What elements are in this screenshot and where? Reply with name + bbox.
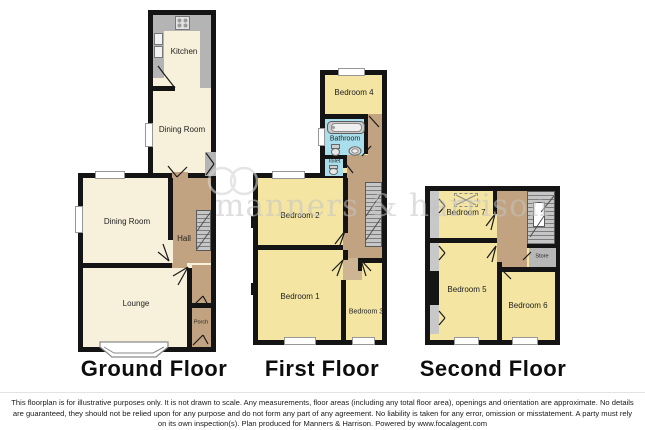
window [145, 123, 153, 147]
floorplan-canvas: Kitchen Dining Room Dining Room Hall Lou… [0, 0, 645, 430]
hall-door-gap [172, 172, 188, 179]
window [75, 206, 83, 233]
room-label-bedroom7: Bedroom 7 [446, 209, 485, 217]
window [95, 171, 125, 179]
eaves-storage [430, 191, 439, 238]
kitchen-counter-top [153, 15, 211, 31]
eaves-storage [430, 243, 439, 271]
first-stairs [365, 182, 382, 247]
room-label-dining-lower: Dining Room [104, 218, 150, 226]
second-floor-title: Second Floor [420, 356, 567, 382]
room-label-porch: Porch [194, 320, 208, 326]
window [454, 337, 479, 345]
room-label-kitchen: Kitchen [171, 48, 198, 56]
bed1-stub-wall [343, 250, 348, 260]
chimney-notch [251, 216, 257, 228]
room-label-hall: Hall [177, 235, 191, 243]
lounge-door-gap [172, 263, 187, 268]
ground-floor-title: Ground Floor [81, 356, 228, 382]
room-label-bedroom4: Bedroom 4 [334, 89, 373, 97]
dining-lounge-wall [83, 263, 172, 268]
second-landing [497, 191, 527, 267]
bed2-landing-wall [343, 178, 348, 233]
first-floor-title: First Floor [265, 356, 379, 382]
oven-icon [154, 46, 163, 58]
bed1-bed3-wall [341, 280, 346, 340]
bed6-top-wall [497, 267, 556, 272]
room-label-bedroom3: Bedroom 3 [349, 309, 383, 316]
left-wall-block [430, 271, 439, 305]
kitchen-counter-right [200, 31, 211, 88]
skylight-icon [454, 193, 478, 207]
room-label-bedroom1: Bedroom 1 [280, 293, 319, 301]
first-section-bridge [347, 172, 382, 179]
ground-stairs [196, 210, 211, 251]
window [318, 128, 325, 146]
window [284, 337, 316, 345]
room-label-bedroom2: Bedroom 2 [280, 212, 319, 220]
porch-top-wall [192, 303, 211, 308]
window [272, 171, 305, 179]
room-label-bedroom6: Bedroom 6 [508, 302, 547, 310]
kitchen-dining-wall [153, 86, 175, 91]
room-label-lounge: Lounge [123, 300, 150, 308]
room-label-bedroom5: Bedroom 5 [447, 286, 486, 294]
window [352, 337, 375, 345]
hall-corridor [192, 265, 211, 303]
bed7-landing-wall [493, 191, 497, 214]
stairs-void [533, 202, 545, 227]
room-label-toilet: Toilet [328, 159, 341, 165]
room-label-dining-upper: Dining Room [159, 126, 205, 134]
disclaimer-text: This floorplan is for illustrative purpo… [0, 392, 645, 430]
eaves-storage [430, 305, 439, 334]
dining-door-recess [205, 152, 216, 176]
porch-area [192, 308, 211, 347]
bed7-bed5-wall [430, 238, 497, 243]
bed5-right-wall [497, 262, 502, 340]
window [338, 68, 365, 76]
room-label-bathroom: Bathroom [330, 136, 360, 143]
window [512, 337, 538, 345]
oven-icon [154, 33, 163, 45]
stub-right-wall [358, 263, 362, 271]
room-label-store: Store [535, 254, 548, 260]
first-landing-strip [368, 114, 382, 178]
bed2-bed1-wall [258, 245, 343, 250]
chimney-notch [251, 283, 257, 295]
bathroom-right-wall [364, 114, 368, 154]
dining-hall-wall [168, 178, 173, 240]
toilet-right-wall [343, 155, 347, 168]
